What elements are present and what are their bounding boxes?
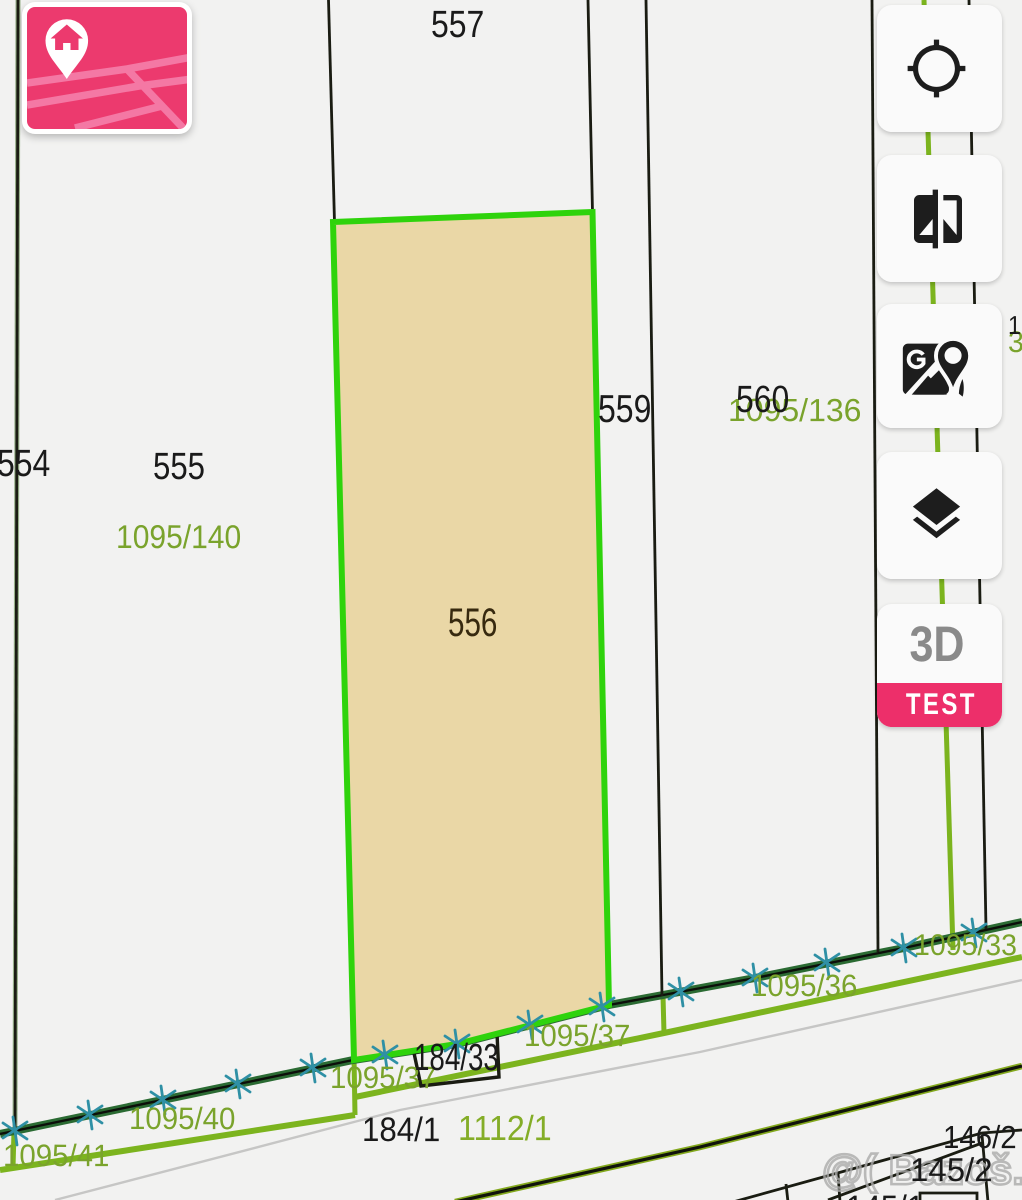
svg-text:1095/33: 1095/33: [914, 929, 1017, 962]
svg-text:1095/37: 1095/37: [524, 1019, 630, 1053]
svg-text:560: 560: [736, 378, 789, 420]
svg-text:1095/36: 1095/36: [751, 969, 857, 1003]
svg-text:559: 559: [598, 387, 651, 431]
svg-text:184/33: 184/33: [414, 1037, 499, 1079]
svg-text:1095/40: 1095/40: [129, 1102, 235, 1136]
svg-text:145/1: 145/1: [846, 1188, 924, 1200]
svg-text:1095/140: 1095/140: [116, 518, 241, 556]
svg-text:146/2: 146/2: [943, 1119, 1017, 1156]
svg-text:555: 555: [153, 446, 205, 488]
svg-text:184/1: 184/1: [362, 1110, 440, 1149]
svg-text:145/2: 145/2: [910, 1151, 993, 1188]
svg-text:556: 556: [448, 601, 497, 645]
svg-text:1095/41: 1095/41: [3, 1139, 109, 1173]
svg-text:557: 557: [431, 3, 484, 45]
svg-text:1112/1: 1112/1: [458, 1110, 552, 1149]
svg-text:1: 1: [1008, 312, 1021, 340]
svg-text:554: 554: [0, 442, 50, 484]
